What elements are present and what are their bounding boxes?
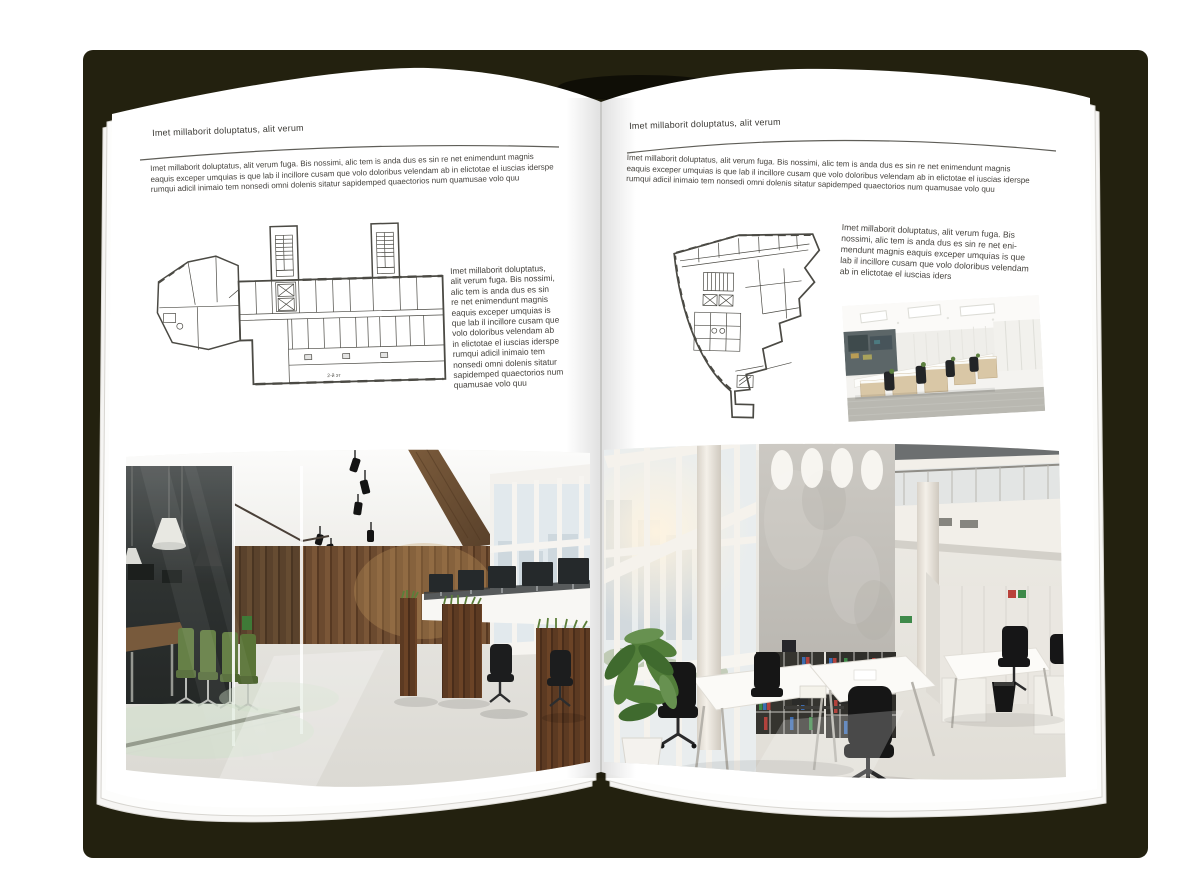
right-floorplan — [642, 219, 839, 424]
waste-bin — [992, 682, 1016, 712]
right-page-caption: Imet millaborit doluptatus, alit verum f… — [840, 222, 1052, 286]
concrete-wall — [759, 444, 895, 652]
magazine-mockup: Imet millaborit doluptatus, alit verum I… — [0, 0, 1200, 891]
safety-sign-red — [1008, 590, 1016, 598]
floorplan-floor-label: 2-й эт — [327, 372, 341, 379]
exit-sign — [900, 616, 912, 623]
green-bin — [242, 616, 252, 630]
lounge-area — [843, 329, 897, 376]
office-photo-right — [604, 440, 1076, 788]
left-page-caption: Imet millaborit doluptatus, alit verum f… — [450, 262, 589, 391]
left-floorplan: 2-й эт — [151, 218, 452, 414]
office-photo-small — [842, 295, 1045, 422]
safety-sign-green — [1018, 590, 1026, 598]
office-photo-left — [124, 446, 591, 790]
